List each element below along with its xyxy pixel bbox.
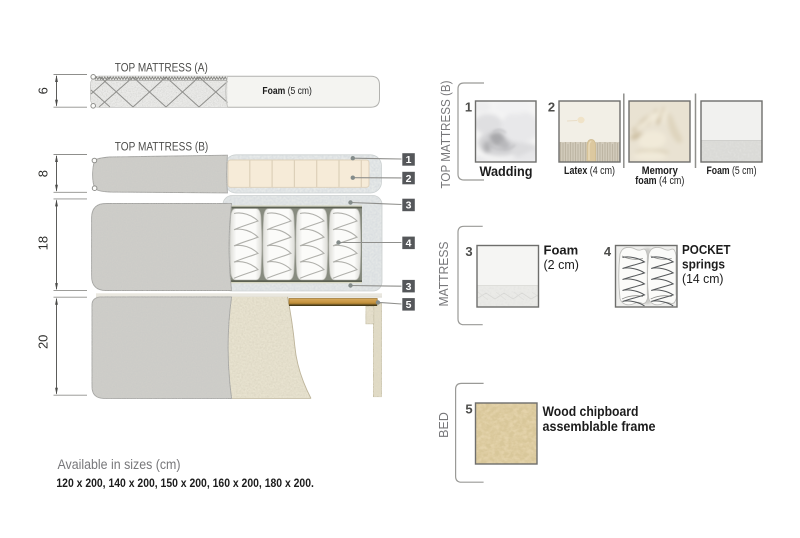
svg-text:8: 8	[35, 170, 50, 177]
svg-text:4: 4	[406, 238, 412, 250]
svg-text:3: 3	[465, 244, 472, 259]
svg-text:(14 cm): (14 cm)	[682, 272, 724, 286]
svg-text:1: 1	[406, 154, 412, 166]
svg-text:MATTRESS: MATTRESS	[437, 242, 451, 307]
svg-text:3: 3	[406, 281, 412, 293]
svg-text:Foam (5 cm): Foam (5 cm)	[707, 165, 757, 177]
svg-text:6: 6	[35, 87, 50, 94]
svg-text:TOP MATTRESS (A): TOP MATTRESS (A)	[115, 63, 208, 75]
svg-text:Wadding: Wadding	[480, 164, 533, 179]
svg-text:assemblable frame: assemblable frame	[543, 419, 656, 434]
svg-text:TOP MATTRESS (B): TOP MATTRESS (B)	[115, 142, 209, 154]
svg-text:4: 4	[604, 244, 612, 259]
svg-text:2: 2	[406, 173, 412, 185]
svg-text:5: 5	[406, 299, 412, 311]
svg-text:1: 1	[465, 100, 472, 115]
svg-text:Wood chipboard: Wood chipboard	[543, 404, 639, 419]
svg-text:(2 cm): (2 cm)	[544, 258, 579, 272]
svg-text:springs: springs	[682, 257, 725, 272]
svg-text:2: 2	[548, 100, 555, 115]
svg-text:Foam (5 cm): Foam (5 cm)	[262, 85, 312, 97]
svg-text:Available in sizes (cm): Available in sizes (cm)	[58, 457, 181, 472]
svg-text:18: 18	[35, 236, 50, 250]
svg-text:5: 5	[465, 402, 472, 417]
svg-text:BED: BED	[437, 412, 451, 438]
svg-text:Foam: Foam	[544, 243, 579, 258]
svg-text:foam (4 cm): foam (4 cm)	[635, 175, 684, 187]
svg-text:POCKET: POCKET	[682, 242, 731, 257]
svg-text:Latex (4 cm): Latex (4 cm)	[564, 165, 615, 177]
svg-text:TOP MATTRESS (B): TOP MATTRESS (B)	[439, 81, 453, 189]
svg-text:3: 3	[406, 200, 412, 212]
svg-text:120 x 200, 140 x 200, 150 x 20: 120 x 200, 140 x 200, 150 x 200, 160 x 2…	[56, 476, 314, 490]
svg-text:20: 20	[35, 335, 50, 349]
